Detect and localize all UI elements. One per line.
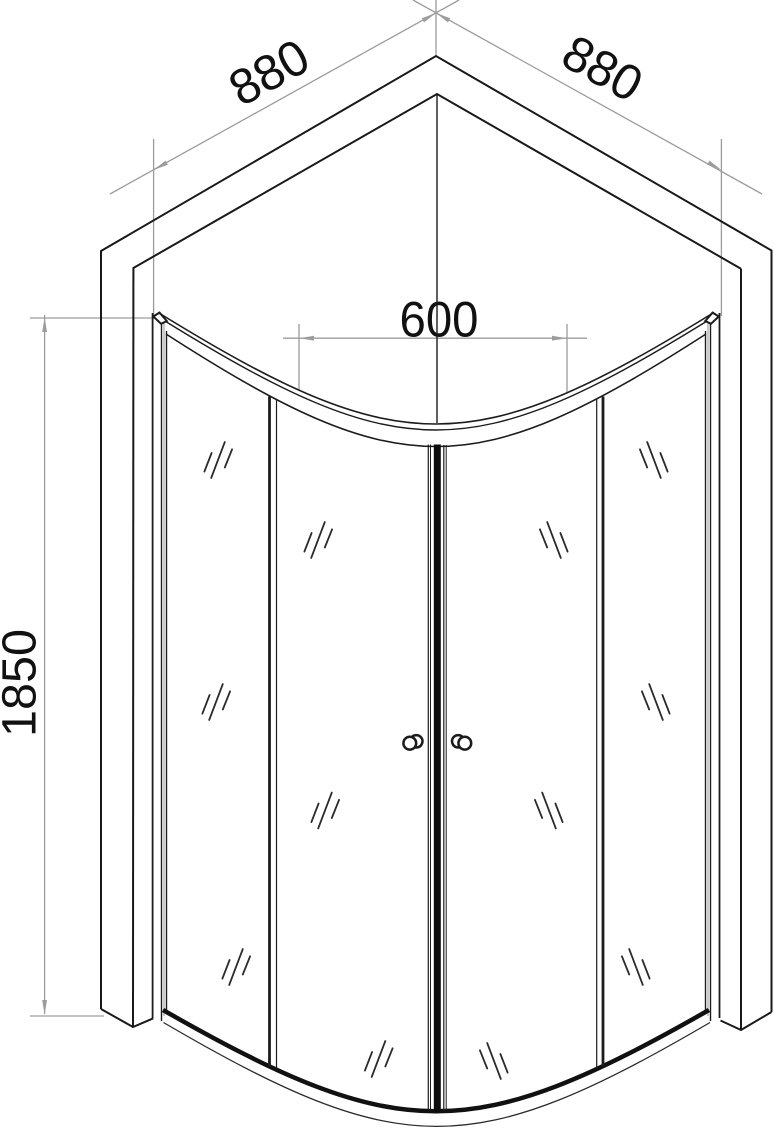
svg-text:600: 600 bbox=[400, 292, 479, 348]
svg-text:1850: 1850 bbox=[0, 629, 47, 737]
svg-text:880: 880 bbox=[553, 24, 652, 113]
svg-text:880: 880 bbox=[220, 28, 319, 117]
